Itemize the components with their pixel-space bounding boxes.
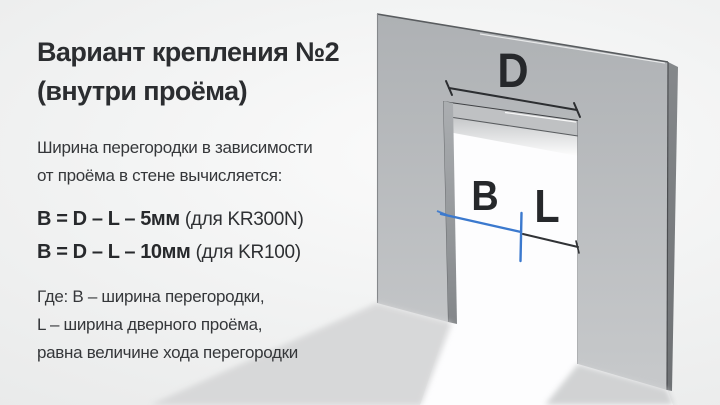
formulas: B = D – L – 5мм (для KR300N) B = D – L –… bbox=[37, 203, 377, 269]
title-line-2: (внутри проёма) bbox=[37, 72, 377, 111]
legend-text: Где: B – ширина перегородки, L – ширина … bbox=[37, 283, 377, 367]
legend-line-3: равна величине хода перегородки bbox=[37, 339, 377, 367]
formula-kr100: B = D – L – 10мм (для KR100) bbox=[37, 236, 377, 269]
formula-kr100-note: (для KR100) bbox=[196, 242, 301, 263]
legend-line-1: Где: B – ширина перегородки, bbox=[37, 283, 377, 311]
title-line-1: Вариант крепления №2 bbox=[37, 33, 377, 72]
formula-kr300n-note: (для KR300N) bbox=[185, 209, 304, 230]
formula-kr100-expression: B = D – L – 10мм bbox=[37, 241, 196, 263]
label-partition-width-b: B bbox=[471, 173, 498, 219]
slide: D B L Вариант крепления №2 (внутри проём… bbox=[0, 0, 720, 405]
formula-kr300n: B = D – L – 5мм (для KR300N) bbox=[37, 203, 377, 236]
label-opening-width-d: D bbox=[497, 44, 528, 98]
page-title: Вариант крепления №2 (внутри проёма) bbox=[37, 33, 377, 111]
intro-text: Ширина перегородки в зависимости от проё… bbox=[37, 134, 377, 190]
dimension-tick-mid bbox=[521, 213, 522, 261]
intro-line-1: Ширина перегородки в зависимости bbox=[37, 134, 377, 162]
text-panel: Вариант крепления №2 (внутри проёма) Шир… bbox=[37, 33, 377, 367]
intro-line-2: от проёма в стене вычисляется: bbox=[37, 162, 377, 190]
legend-line-2: L – ширина дверного проёма, bbox=[37, 311, 377, 339]
wall-side-face bbox=[667, 62, 678, 391]
formula-kr300n-expression: B = D – L – 5мм bbox=[37, 208, 185, 230]
label-travel-width-l: L bbox=[534, 181, 559, 233]
